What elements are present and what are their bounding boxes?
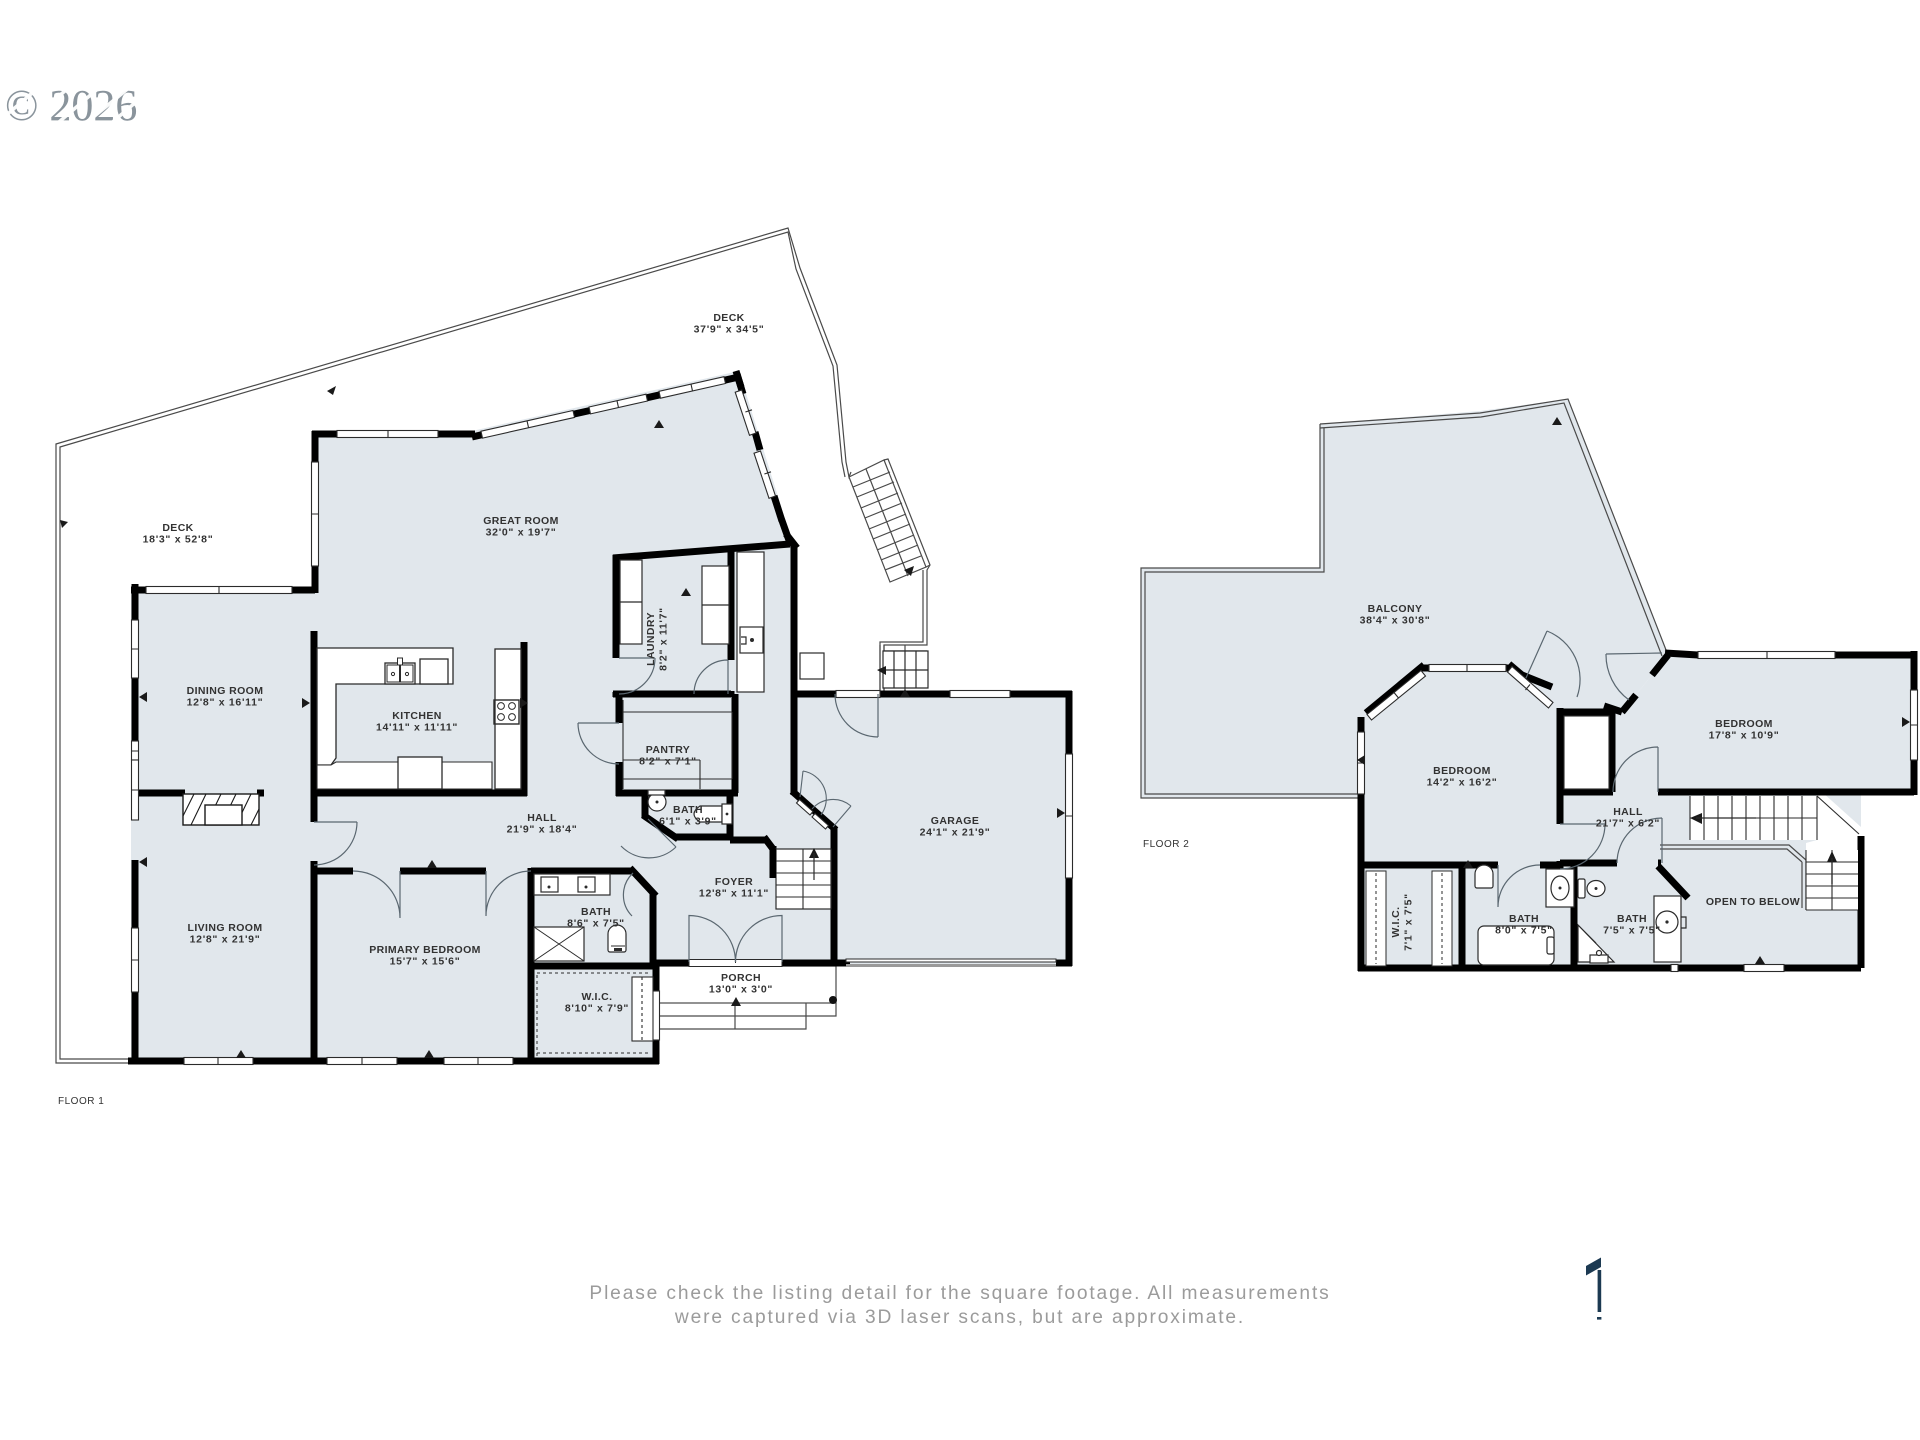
svg-text:DECK: DECK [713, 312, 744, 324]
svg-text:BATH: BATH [1509, 913, 1539, 925]
svg-text:14'2" x 16'2": 14'2" x 16'2" [1427, 777, 1498, 789]
svg-text:KITCHEN: KITCHEN [392, 710, 441, 722]
svg-text:FLOOR 2: FLOOR 2 [1143, 839, 1189, 850]
svg-text:8'2" x 7'1": 8'2" x 7'1" [639, 756, 697, 768]
svg-text:14'11" x 11'11": 14'11" x 11'11" [376, 722, 458, 734]
svg-text:21'7" x 6'2": 21'7" x 6'2" [1596, 818, 1660, 830]
svg-text:24'1" x 21'9": 24'1" x 21'9" [920, 827, 991, 839]
svg-text:GARAGE: GARAGE [931, 815, 980, 827]
svg-text:37'9" x 34'5": 37'9" x 34'5" [694, 324, 765, 336]
svg-text:8'10" x 7'9": 8'10" x 7'9" [565, 1003, 629, 1015]
svg-text:W.I.C.: W.I.C. [582, 991, 613, 1003]
svg-text:15'7" x 15'6": 15'7" x 15'6" [390, 956, 461, 968]
svg-text:12'8" x 16'11": 12'8" x 16'11" [187, 697, 264, 709]
svg-text:© 2026: © 2026 [5, 81, 137, 130]
svg-text:GREAT ROOM: GREAT ROOM [483, 515, 559, 527]
svg-text:12'8" x 21'9": 12'8" x 21'9" [190, 934, 261, 946]
svg-text:FOYER: FOYER [715, 876, 753, 888]
svg-text:DECK: DECK [162, 522, 193, 534]
svg-text:8'2" x 11'7": 8'2" x 11'7" [658, 607, 670, 671]
svg-text:BATH: BATH [673, 804, 703, 816]
svg-text:38'4" x 30'8": 38'4" x 30'8" [1360, 615, 1431, 627]
svg-text:HALL: HALL [527, 812, 557, 824]
svg-text:32'0" x 19'7": 32'0" x 19'7" [486, 527, 557, 539]
svg-text:17'8" x 10'9": 17'8" x 10'9" [1709, 730, 1780, 742]
svg-text:7'1" x 7'5": 7'1" x 7'5" [1403, 893, 1415, 951]
svg-text:PRIMARY BEDROOM: PRIMARY BEDROOM [369, 944, 481, 956]
svg-text:8'6" x 7'5": 8'6" x 7'5" [567, 918, 625, 930]
svg-text:13'0" x 3'0": 13'0" x 3'0" [709, 984, 773, 996]
svg-text:8'0" x 7'5": 8'0" x 7'5" [1495, 925, 1553, 937]
svg-text:LIVING ROOM: LIVING ROOM [188, 922, 263, 934]
svg-text:OPEN TO BELOW: OPEN TO BELOW [1706, 896, 1800, 908]
svg-text:PORCH: PORCH [721, 972, 761, 984]
svg-text:BATH: BATH [1617, 913, 1647, 925]
svg-text:21'9" x 18'4": 21'9" x 18'4" [507, 824, 578, 836]
svg-text:BATH: BATH [581, 906, 611, 918]
svg-text:Please check the listing detai: Please check the listing detail for the … [589, 1283, 1330, 1304]
svg-text:18'3" x 52'8": 18'3" x 52'8" [143, 534, 214, 546]
svg-text:BEDROOM: BEDROOM [1433, 765, 1491, 777]
svg-text:W.I.C.: W.I.C. [1390, 907, 1402, 938]
svg-text:BALCONY: BALCONY [1368, 603, 1423, 615]
svg-text:HALL: HALL [1613, 806, 1643, 818]
svg-text:FLOOR 1: FLOOR 1 [58, 1096, 104, 1107]
svg-text:DINING ROOM: DINING ROOM [187, 685, 264, 697]
svg-text:12'8" x 11'1": 12'8" x 11'1" [699, 888, 769, 900]
svg-text:7'5" x 7'5": 7'5" x 7'5" [1603, 925, 1661, 937]
svg-text:6'1" x 3'9": 6'1" x 3'9" [659, 816, 717, 828]
svg-text:PANTRY: PANTRY [646, 744, 690, 756]
svg-text:BEDROOM: BEDROOM [1715, 718, 1773, 730]
svg-text:LAUNDRY: LAUNDRY [645, 612, 657, 666]
svg-text:were captured via 3D laser sca: were captured via 3D laser scans, but ar… [674, 1307, 1245, 1328]
